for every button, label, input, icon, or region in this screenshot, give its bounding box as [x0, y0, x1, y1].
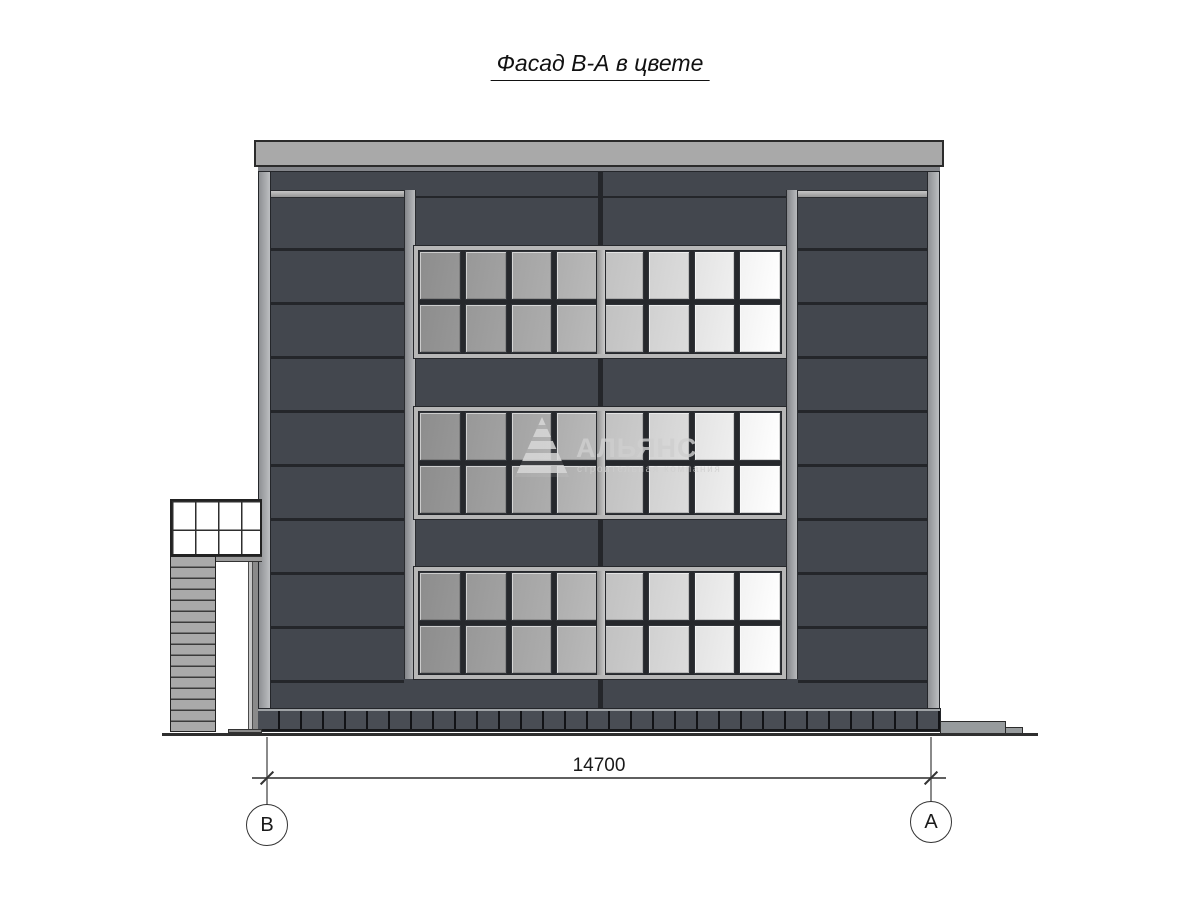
axis-label-b: В — [260, 814, 273, 837]
window-pane — [694, 572, 736, 621]
window-pane — [739, 465, 781, 514]
central-mullion — [596, 571, 606, 675]
axis-marker-b: В — [246, 804, 288, 846]
dimension-value: 14700 — [539, 755, 659, 777]
axis-marker-a: А — [910, 801, 952, 843]
window-pane — [694, 625, 736, 674]
window-pane — [602, 465, 644, 514]
window-pane — [419, 251, 461, 300]
window-pane — [694, 465, 736, 514]
inner-pilaster-right — [786, 190, 798, 679]
window-pane — [648, 304, 690, 353]
window-pane — [419, 412, 461, 461]
window-pane — [465, 304, 507, 353]
window-pane — [556, 572, 598, 621]
window-pane — [694, 304, 736, 353]
window-pane — [602, 251, 644, 300]
wing-panels-left — [271, 197, 404, 708]
window-band-top — [414, 246, 786, 358]
facade-body — [258, 171, 940, 709]
ground-line — [162, 733, 1038, 736]
window-pane — [465, 251, 507, 300]
corner-pilaster-left — [259, 172, 271, 708]
central-horizontal-joint — [416, 196, 786, 198]
corner-pilaster-right — [927, 172, 939, 708]
entrance-door-jamb-inner — [253, 562, 258, 732]
window-pane — [648, 412, 690, 461]
window-pane — [419, 304, 461, 353]
window-pane — [602, 572, 644, 621]
roof-parapet — [254, 140, 944, 167]
window-grid — [419, 572, 781, 674]
window-band-middle — [414, 407, 786, 519]
entrance-stairs — [170, 556, 216, 732]
window-pane — [602, 304, 644, 353]
window-pane — [602, 412, 644, 461]
window-pane — [556, 304, 598, 353]
window-grid — [419, 251, 781, 353]
window-pane — [511, 465, 553, 514]
window-pane — [511, 572, 553, 621]
window-pane — [602, 625, 644, 674]
window-pane — [556, 465, 598, 514]
central-mullion — [596, 250, 606, 354]
entrance-door-opening — [216, 562, 248, 732]
window-pane — [465, 465, 507, 514]
wing-panels-right — [798, 197, 927, 708]
plinth-blocks — [258, 709, 940, 731]
window-pane — [739, 304, 781, 353]
cap-strip-right — [786, 190, 927, 198]
window-pane — [648, 572, 690, 621]
window-pane — [511, 412, 553, 461]
extension-line-right — [930, 737, 932, 802]
window-pane — [648, 465, 690, 514]
window-pane — [739, 251, 781, 300]
window-pane — [511, 251, 553, 300]
window-pane — [465, 572, 507, 621]
window-pane — [556, 625, 598, 674]
cap-strip-left — [271, 190, 416, 198]
window-pane — [419, 572, 461, 621]
window-pane — [739, 412, 781, 461]
window-grid — [419, 412, 781, 514]
extension-line-left — [266, 737, 268, 805]
window-pane — [511, 625, 553, 674]
drawing-title: Фасад В-А в цвете — [491, 50, 710, 81]
window-pane — [648, 625, 690, 674]
window-pane — [648, 251, 690, 300]
window-pane — [739, 625, 781, 674]
window-pane — [465, 412, 507, 461]
window-pane — [694, 412, 736, 461]
window-pane — [419, 465, 461, 514]
window-pane — [694, 251, 736, 300]
window-pane — [556, 412, 598, 461]
window-band-bottom — [414, 567, 786, 679]
window-pane — [739, 572, 781, 621]
window-pane — [419, 625, 461, 674]
drawing-canvas: Фасад В-А в цвете — [0, 0, 1200, 900]
window-pane — [511, 304, 553, 353]
window-pane — [465, 625, 507, 674]
axis-label-a: А — [924, 811, 937, 834]
central-mullion — [596, 411, 606, 515]
window-pane — [556, 251, 598, 300]
dimension-line — [252, 777, 946, 779]
entrance-glazing-grid — [170, 499, 262, 556]
